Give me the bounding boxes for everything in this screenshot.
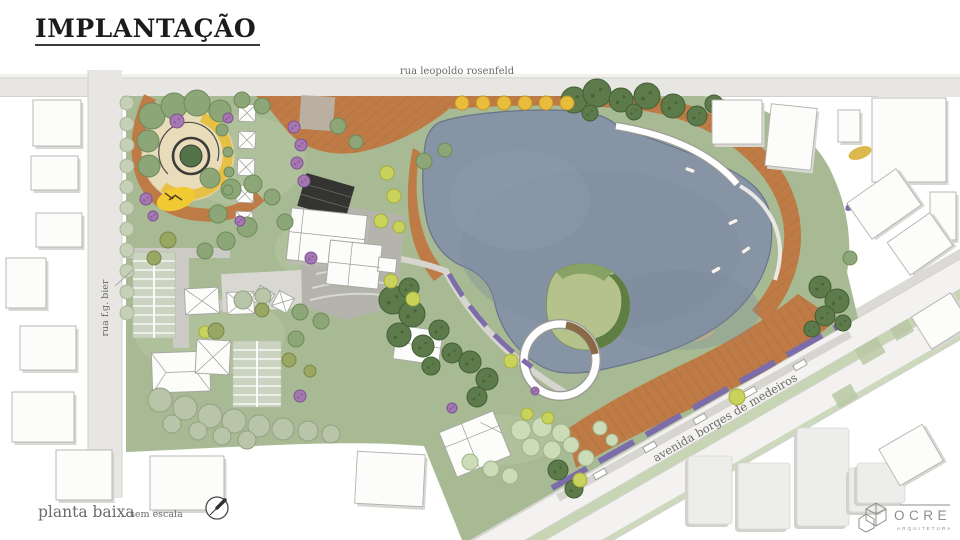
- purple-flowering-tree: [223, 113, 233, 123]
- medium-green-tree: [277, 214, 293, 230]
- dark-leafy-tree: [582, 105, 598, 121]
- context-building: [765, 104, 820, 174]
- logo-name: OCRE: [894, 508, 951, 523]
- site-plan-slide: IMPLANTAÇÃO: [0, 0, 960, 540]
- purple-flowering-tree: [294, 390, 306, 402]
- dark-leafy-tree: [429, 320, 449, 340]
- medium-green-tree: [254, 98, 270, 114]
- lime-tree: [374, 214, 388, 228]
- medium-green-tree: [209, 205, 227, 223]
- caption-planta-baixa: planta baixa: [38, 503, 135, 521]
- kiosk-tent: [237, 158, 255, 176]
- pavilion: [184, 287, 219, 315]
- purple-flowering-tree: [140, 193, 152, 205]
- yellow-flowering-tree: [560, 96, 574, 110]
- caption-sem-escala: . sem escala: [124, 509, 183, 520]
- context-building: [712, 100, 765, 147]
- context-building: [872, 98, 949, 185]
- dark-leafy-tree: [476, 368, 498, 390]
- lime-tree: [504, 354, 518, 368]
- purple-flowering-tree: [148, 211, 158, 221]
- purple-flowering-tree: [288, 121, 300, 133]
- lime-tree: [384, 274, 398, 288]
- medium-green-tree: [416, 153, 432, 169]
- purple-flowering-tree: [235, 216, 245, 226]
- medium-green-tree: [244, 175, 262, 193]
- house-southwest-2: [195, 339, 231, 375]
- olive-tree: [282, 353, 296, 367]
- context-building-gray: [685, 456, 732, 527]
- medium-green-tree: [288, 331, 304, 347]
- medium-green-tree: [292, 304, 308, 320]
- sage-big-tree: [148, 388, 172, 412]
- medium-green-tree: [197, 243, 213, 259]
- mint-tree: [502, 468, 518, 484]
- sage-street-tree: [120, 180, 134, 194]
- mint-tree: [522, 438, 540, 456]
- context-building: [36, 213, 85, 250]
- sage-street-tree: [120, 96, 134, 110]
- purple-flowering-tree: [305, 252, 317, 264]
- mint-tree: [483, 461, 499, 477]
- medium-green-tree: [223, 147, 233, 157]
- page-title: IMPLANTAÇÃO: [35, 14, 260, 46]
- purple-flowering-tree: [447, 403, 457, 413]
- sage-big-tree: [238, 431, 256, 449]
- sage-street-tree: [120, 306, 134, 320]
- dark-leafy-tree: [548, 460, 568, 480]
- dark-leafy-tree: [387, 323, 411, 347]
- olive-tree: [304, 365, 316, 377]
- dark-leafy-tree: [459, 351, 481, 373]
- dark-leafy-tree: [835, 315, 851, 331]
- mint-tree: [606, 434, 618, 446]
- medium-green-tree: [223, 185, 233, 195]
- lime-tree: [542, 412, 554, 424]
- lime-tree: [393, 221, 405, 233]
- north-compass-icon: [206, 497, 228, 519]
- dark-leafy-tree: [422, 357, 440, 375]
- parking-lot: [233, 341, 281, 407]
- context-building: [355, 451, 428, 510]
- lime-tree: [380, 166, 394, 180]
- olive-tree: [147, 251, 161, 265]
- purple-flowering-tree: [298, 175, 310, 187]
- medium-green-tree: [224, 167, 234, 177]
- sage-big-tree: [255, 288, 271, 304]
- context-building: [56, 450, 115, 503]
- lime-tree: [387, 189, 401, 203]
- context-building: [33, 100, 84, 149]
- context-building-gray: [794, 428, 849, 529]
- context-building-gray: [735, 463, 790, 532]
- street-left-label: rua f.g. bier: [100, 279, 111, 336]
- medium-green-tree: [200, 168, 220, 188]
- mint-tree: [462, 454, 478, 470]
- dark-leafy-tree: [412, 335, 434, 357]
- medium-green-tree: [137, 130, 159, 152]
- purple-flowering-tree: [531, 387, 539, 395]
- sage-street-tree: [120, 138, 134, 152]
- context-building: [31, 156, 81, 193]
- olive-tree: [255, 303, 269, 317]
- dark-leafy-tree: [583, 79, 611, 107]
- sage-big-tree: [298, 421, 318, 441]
- sage-big-tree: [189, 422, 207, 440]
- context-building: [6, 258, 49, 311]
- yellow-flowering-tree: [497, 96, 511, 110]
- medium-green-tree: [138, 155, 160, 177]
- sage-big-tree: [322, 425, 340, 443]
- dark-leafy-tree: [626, 104, 642, 120]
- sage-big-tree: [163, 415, 181, 433]
- yellow-flowering-tree: [539, 96, 553, 110]
- olive-tree: [160, 232, 176, 248]
- logo-subtitle: ARQUITETURA: [897, 526, 952, 532]
- mint-tree: [593, 421, 607, 435]
- sage-street-tree: [120, 222, 134, 236]
- dark-leafy-tree: [661, 94, 685, 118]
- northeast-yellow-bed: [847, 143, 874, 162]
- medium-green-tree: [438, 143, 452, 157]
- mint-tree: [543, 441, 561, 459]
- mint-tree: [563, 437, 579, 453]
- sage-street-tree: [120, 201, 134, 215]
- lime-tree: [521, 408, 533, 420]
- play-ring-center: [180, 145, 202, 167]
- street-top: [0, 74, 960, 97]
- medium-green-tree: [843, 251, 857, 265]
- context-building: [20, 326, 79, 373]
- sage-street-tree: [120, 159, 134, 173]
- medium-green-tree: [234, 92, 250, 108]
- dark-leafy-tree: [687, 106, 707, 126]
- dark-leafy-tree: [467, 387, 487, 407]
- context-building: [12, 392, 77, 445]
- sage-big-tree: [272, 418, 294, 440]
- medium-green-tree: [313, 313, 329, 329]
- medium-green-tree: [264, 189, 280, 205]
- sage-big-tree: [213, 427, 231, 445]
- dark-leafy-tree: [804, 321, 820, 337]
- mint-tree: [511, 420, 531, 440]
- purple-flowering-tree: [295, 139, 307, 151]
- street-top-label: rua leopoldo rosenfeld: [400, 66, 515, 77]
- lime-tree: [573, 473, 587, 487]
- sage-big-tree: [234, 291, 252, 309]
- sage-street-tree: [120, 285, 134, 299]
- medium-green-tree: [217, 232, 235, 250]
- kiosk-tent: [238, 131, 256, 149]
- context-building: [838, 110, 863, 145]
- site-plan-drawing: rua leopoldo rosenfeld rua f.g. bier ave…: [0, 0, 960, 540]
- purple-flowering-tree: [291, 157, 303, 169]
- yellow-flowering-tree: [518, 96, 532, 110]
- mint-tree: [578, 450, 594, 466]
- medium-green-tree: [349, 135, 363, 149]
- medium-green-tree: [216, 124, 228, 136]
- yellow-flowering-tree: [476, 96, 490, 110]
- medium-green-tree: [330, 118, 346, 134]
- yellow-flowering-tree: [455, 96, 469, 110]
- olive-tree: [208, 323, 224, 339]
- purple-flowering-tree: [170, 114, 184, 128]
- lime-tree: [406, 292, 420, 306]
- sage-street-tree: [120, 117, 134, 131]
- medium-green-tree: [184, 90, 210, 116]
- sage-street-tree: [120, 243, 134, 257]
